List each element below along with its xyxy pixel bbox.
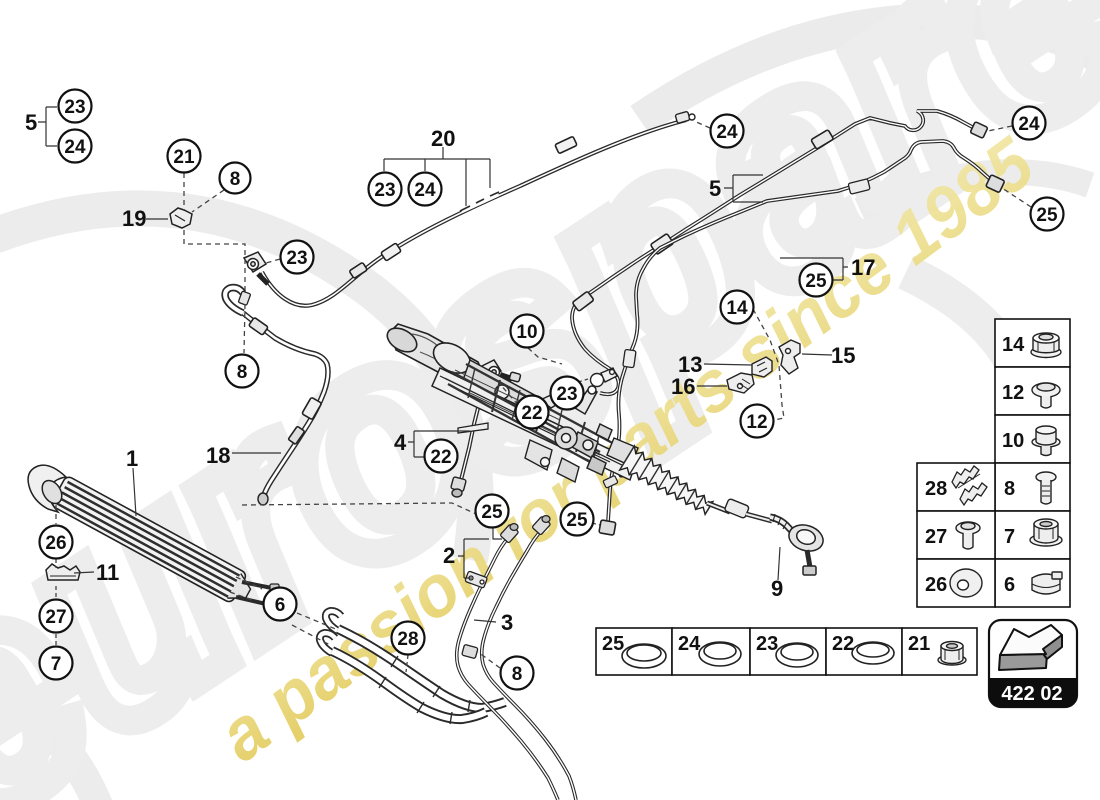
svg-text:422 02: 422 02 bbox=[1001, 683, 1062, 705]
svg-text:28: 28 bbox=[397, 629, 418, 650]
svg-text:23: 23 bbox=[64, 97, 85, 118]
svg-text:20: 20 bbox=[431, 126, 455, 151]
svg-text:22: 22 bbox=[832, 633, 854, 655]
svg-text:18: 18 bbox=[206, 443, 230, 468]
svg-text:4: 4 bbox=[394, 430, 407, 455]
svg-text:21: 21 bbox=[908, 633, 930, 655]
svg-text:17: 17 bbox=[851, 255, 875, 280]
svg-text:22: 22 bbox=[430, 447, 451, 468]
svg-text:25: 25 bbox=[602, 633, 624, 655]
svg-text:24: 24 bbox=[716, 122, 738, 143]
svg-text:3: 3 bbox=[501, 610, 513, 635]
svg-text:23: 23 bbox=[374, 180, 395, 201]
svg-text:5: 5 bbox=[25, 110, 37, 135]
svg-text:25: 25 bbox=[805, 271, 827, 292]
svg-text:8: 8 bbox=[1004, 478, 1015, 500]
svg-text:6: 6 bbox=[275, 595, 286, 616]
svg-text:24: 24 bbox=[64, 137, 86, 158]
svg-text:25: 25 bbox=[566, 510, 588, 531]
svg-text:8: 8 bbox=[230, 169, 241, 190]
svg-text:1: 1 bbox=[126, 446, 138, 471]
svg-text:9: 9 bbox=[771, 576, 783, 601]
svg-text:25: 25 bbox=[1036, 205, 1058, 226]
svg-text:24: 24 bbox=[414, 180, 436, 201]
svg-text:23: 23 bbox=[756, 633, 778, 655]
svg-text:8: 8 bbox=[237, 362, 248, 383]
svg-text:11: 11 bbox=[96, 560, 119, 585]
svg-text:8: 8 bbox=[512, 664, 523, 685]
svg-text:22: 22 bbox=[521, 403, 542, 424]
svg-text:21: 21 bbox=[173, 147, 195, 168]
svg-text:14: 14 bbox=[726, 298, 748, 319]
svg-text:25: 25 bbox=[481, 502, 503, 523]
svg-text:7: 7 bbox=[1004, 526, 1015, 548]
svg-text:14: 14 bbox=[1002, 334, 1025, 356]
svg-text:23: 23 bbox=[286, 248, 307, 269]
svg-text:12: 12 bbox=[1002, 382, 1024, 404]
svg-text:16: 16 bbox=[671, 374, 695, 399]
svg-text:6: 6 bbox=[1004, 574, 1015, 596]
svg-text:24: 24 bbox=[678, 633, 701, 655]
svg-text:28: 28 bbox=[925, 478, 947, 500]
svg-text:26: 26 bbox=[925, 574, 947, 596]
svg-text:27: 27 bbox=[925, 526, 947, 548]
svg-text:27: 27 bbox=[45, 607, 66, 628]
svg-text:10: 10 bbox=[1002, 430, 1024, 452]
svg-text:5: 5 bbox=[709, 176, 721, 201]
svg-text:2: 2 bbox=[443, 543, 455, 568]
svg-text:26: 26 bbox=[45, 533, 66, 554]
svg-text:15: 15 bbox=[831, 343, 855, 368]
svg-text:24: 24 bbox=[1018, 114, 1040, 135]
svg-text:23: 23 bbox=[556, 384, 577, 405]
svg-text:10: 10 bbox=[516, 322, 537, 343]
svg-text:12: 12 bbox=[746, 412, 767, 433]
svg-text:19: 19 bbox=[122, 206, 146, 231]
svg-text:7: 7 bbox=[51, 654, 62, 675]
